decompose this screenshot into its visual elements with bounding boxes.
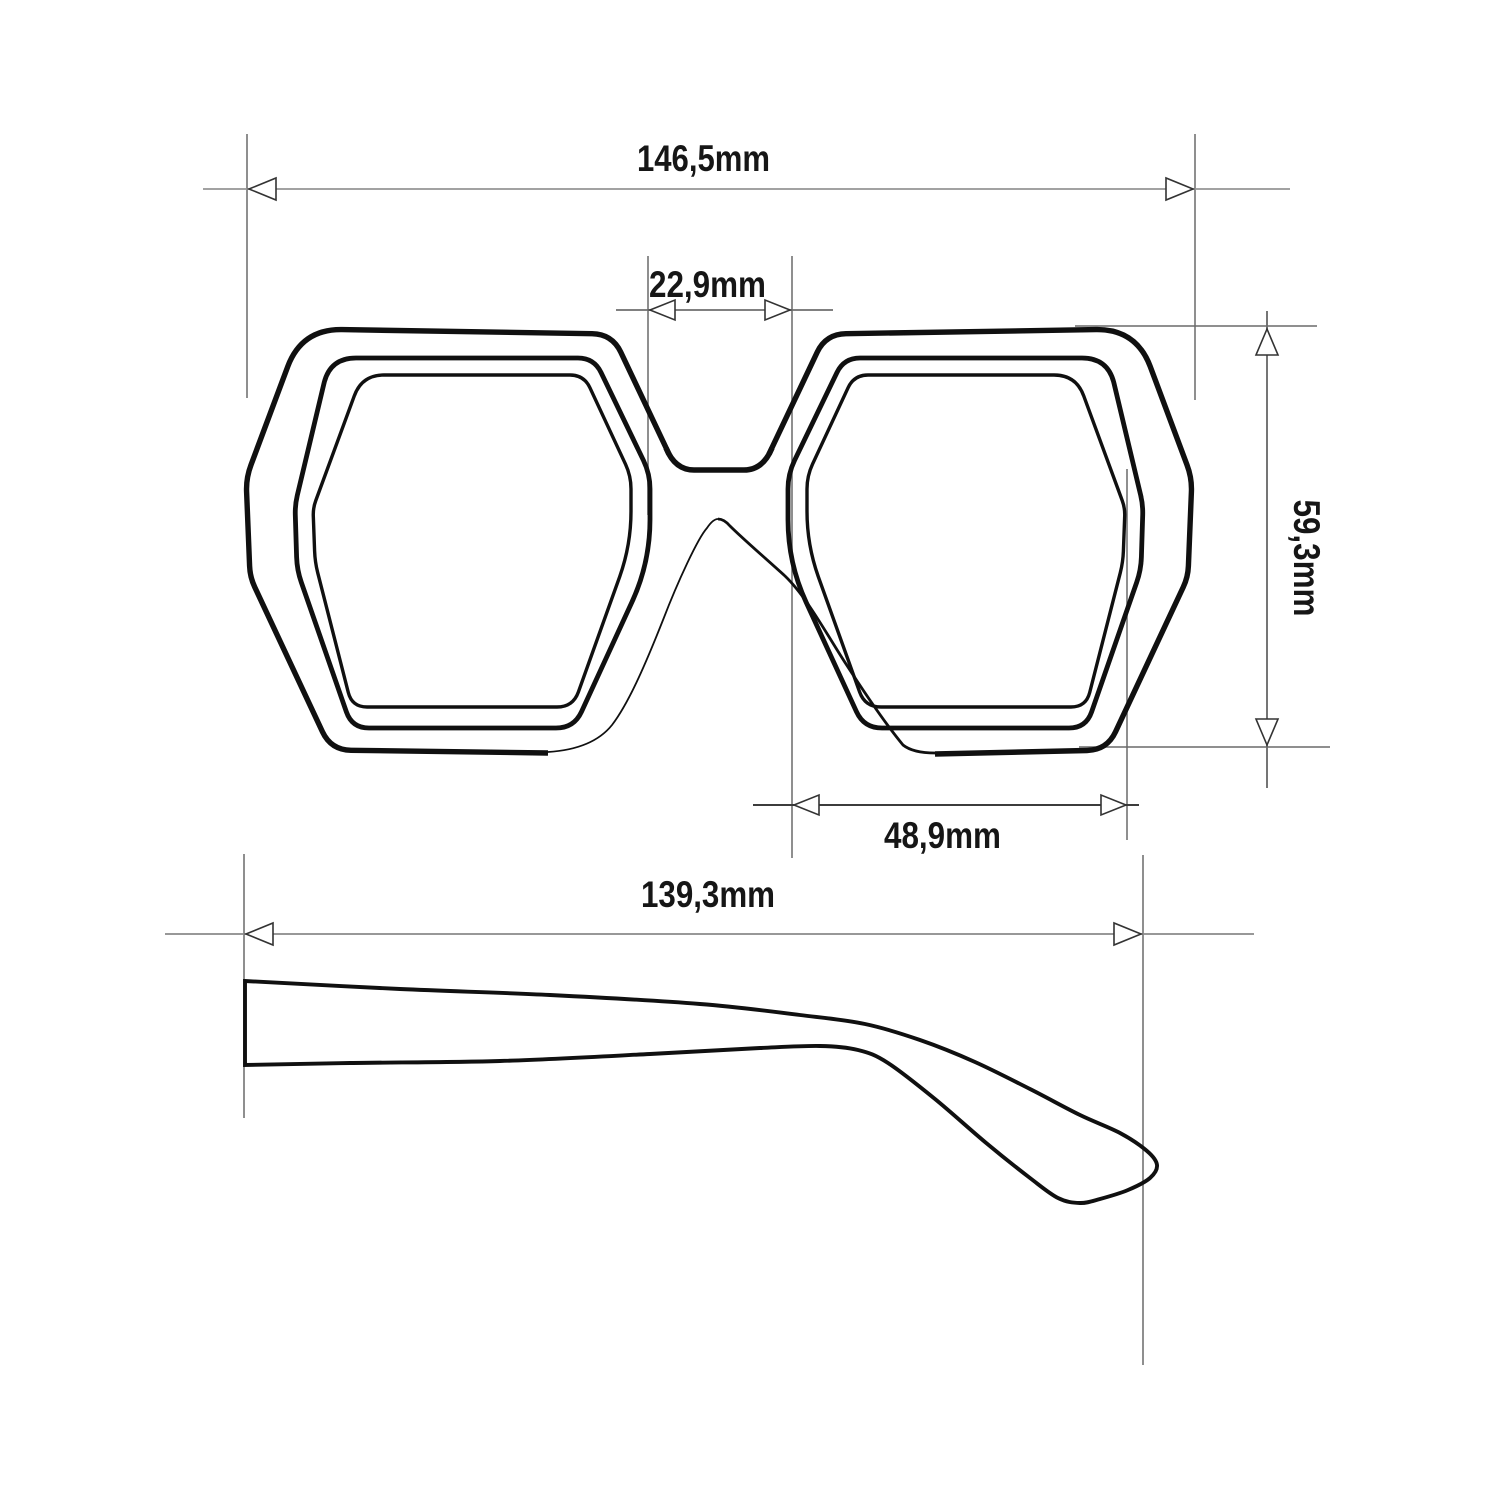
svg-text:146,5mm: 146,5mm xyxy=(637,137,770,179)
svg-text:139,3mm: 139,3mm xyxy=(641,873,775,915)
svg-text:48,9mm: 48,9mm xyxy=(884,814,1001,856)
svg-text:59,3mm: 59,3mm xyxy=(1286,500,1328,617)
svg-text:22,9mm: 22,9mm xyxy=(649,263,766,305)
